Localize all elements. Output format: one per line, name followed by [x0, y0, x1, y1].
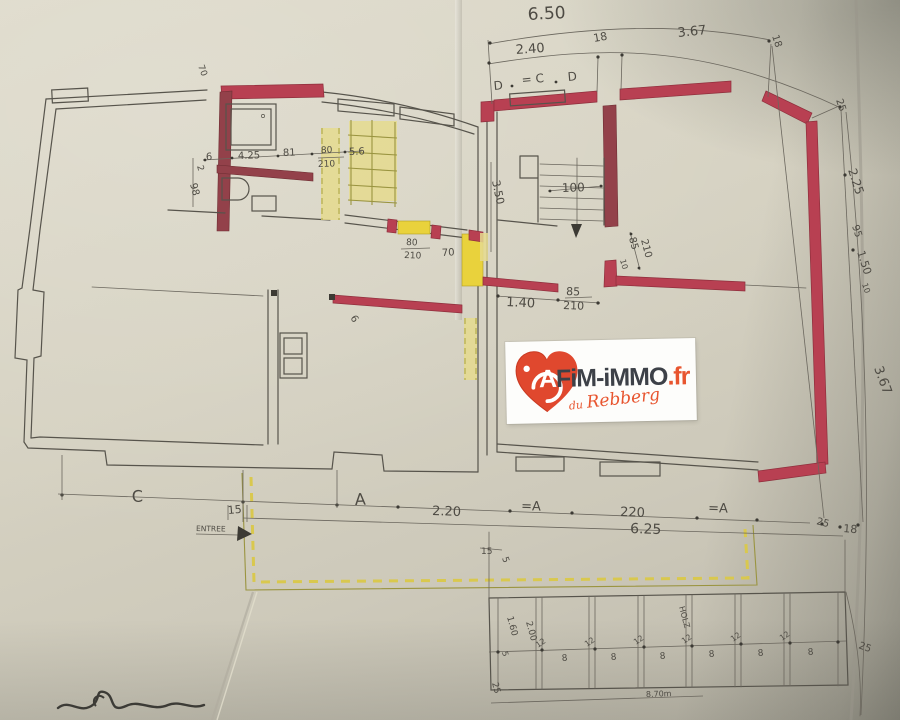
- dim-label: 15: [481, 547, 492, 557]
- dim-label: =A: [521, 499, 541, 515]
- dim-label: A: [354, 490, 366, 509]
- dim-label: C: [131, 487, 143, 506]
- dim-label: 3.50: [489, 179, 507, 206]
- dim-label: 2.25: [845, 167, 867, 197]
- dim-label: 3.67: [677, 23, 707, 41]
- dim-label: 210: [563, 299, 584, 313]
- dim-label: 8: [807, 648, 814, 658]
- dim-label: 6: [348, 313, 361, 325]
- dim-label: 8: [757, 649, 764, 659]
- scanned-floor-plan-photo: { "watermark": { "brand_a": "A", "brand_…: [0, 0, 900, 720]
- brand-tld: .fr: [667, 362, 690, 390]
- door-mark: D: [567, 69, 577, 84]
- dim-label: 18: [843, 522, 858, 536]
- dim-label: 5: [500, 650, 510, 657]
- dim-label: 80: [406, 238, 418, 248]
- dim-label: 25: [833, 98, 847, 114]
- dim-label: 4.25: [238, 150, 261, 162]
- dim-label: 6: [206, 152, 213, 163]
- dim-label: 12: [778, 629, 792, 642]
- dim-label: 85: [566, 285, 580, 298]
- floor-plan: 6.50 2.40 18 3.67 18 25 D = C D 6 4.25 8…: [0, 0, 900, 720]
- dim-label: 12: [632, 633, 646, 646]
- dim-label: 210: [404, 251, 422, 262]
- dim-label: 6.50: [527, 3, 566, 25]
- entry-label: ENTREE: [196, 524, 226, 534]
- dim-label: 8.70m: [646, 689, 672, 699]
- dim-label: 25: [489, 681, 502, 695]
- dim-label: 1.40: [506, 295, 536, 311]
- dim-label: 5: [499, 556, 510, 565]
- dim-label: 100: [562, 180, 585, 195]
- dim-label: 2.20: [432, 504, 461, 520]
- dim-label: 12: [583, 635, 597, 648]
- dim-label: 210: [638, 238, 654, 259]
- dim-label: 2: [194, 164, 205, 172]
- dim-label: 18: [592, 30, 608, 45]
- brand-initial: A: [539, 365, 557, 393]
- dim-label: 15: [227, 503, 242, 517]
- dim-label: 5.6: [349, 146, 365, 158]
- dim-label: 80: [321, 146, 333, 156]
- staircase: [520, 156, 604, 238]
- dim-label: 210: [318, 159, 336, 170]
- door-mark: D: [493, 78, 503, 93]
- dim-label: 70: [195, 64, 208, 78]
- dim-label: 81: [283, 148, 296, 159]
- dim-label: 70: [442, 247, 455, 259]
- dim-label: 220: [620, 505, 645, 521]
- tagline-du: du: [568, 398, 583, 412]
- dimension-lines: [58, 28, 866, 715]
- agency-watermark: AFiM-iMMO.fr duRebberg: [505, 338, 697, 424]
- dim-label: 85: [626, 236, 640, 251]
- dim-label: 12: [729, 630, 743, 643]
- dim-label: 25: [815, 516, 830, 530]
- dim-label: 12: [680, 632, 694, 645]
- dim-label: 10: [618, 258, 629, 270]
- dim-label: 1.60: [504, 615, 519, 637]
- material-label: HOLZ: [677, 605, 692, 629]
- dim-label: 8: [708, 650, 715, 660]
- dim-label: 8: [561, 654, 568, 664]
- handwriting-scribble: [58, 692, 204, 709]
- dim-label: 25: [857, 640, 873, 655]
- dim-label: =A: [708, 501, 728, 517]
- dim-label: 8: [659, 652, 666, 662]
- dim-label: 2.40: [515, 41, 545, 58]
- dim-label: 1.50: [854, 249, 874, 276]
- dim-label: 98: [187, 182, 201, 197]
- dim-label: 3.67: [870, 364, 894, 396]
- dim-label: 18: [769, 34, 783, 50]
- dim-label: 6.25: [630, 521, 662, 538]
- dim-label: 8: [610, 653, 617, 663]
- left-building: [15, 84, 483, 472]
- door-mark: = C: [521, 71, 544, 87]
- garage-annex: [489, 532, 860, 716]
